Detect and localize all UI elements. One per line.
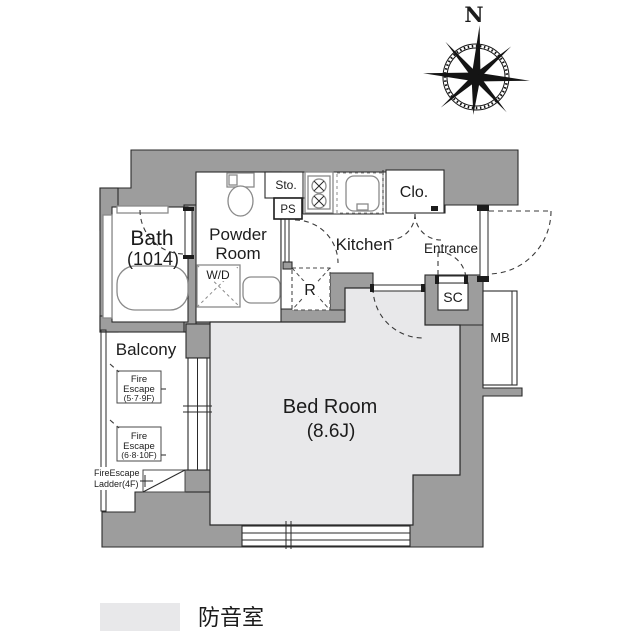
- hatch1-tick: [110, 364, 119, 372]
- compass-rose-icon: N: [420, 2, 533, 119]
- window-bath-top: [117, 206, 168, 213]
- room-label-bath-size: (1014): [127, 249, 179, 269]
- room-label-bedroom: Bed Room: [283, 396, 378, 418]
- closet-jamb: [431, 206, 438, 211]
- ladder-label-line2: Ladder(4F): [94, 479, 139, 489]
- room-label-entrance: Entrance: [424, 241, 478, 256]
- legend-swatch: [100, 603, 180, 631]
- label-meter-box: MB: [490, 330, 510, 345]
- room-label-powder-1: Powder: [209, 225, 267, 244]
- entrance-door: [477, 205, 551, 282]
- ladder-label-line1: FireEscape: [94, 468, 140, 478]
- fire-escape-1-line3: (5·7·9F): [124, 393, 155, 403]
- room-label-balcony: Balcony: [116, 340, 177, 359]
- hatch2-tick: [110, 420, 119, 428]
- north-label: N: [464, 2, 483, 27]
- room-label-bedroom-size: (8.6J): [307, 421, 356, 442]
- floor-plan: N 防音室 Bath (1014) Powder Room W/D Sto. P…: [0, 0, 640, 640]
- wash-basin: [243, 277, 280, 303]
- floor-plan-page: N 防音室 Bath (1014) Powder Room W/D Sto. P…: [0, 0, 640, 640]
- bathtub: [117, 266, 188, 310]
- toilet: [227, 173, 254, 216]
- label-storage: Sto.: [275, 178, 296, 192]
- wall-above-window-stub: [186, 324, 213, 358]
- window-balcony-bedroom: [183, 358, 212, 470]
- label-shoe-closet: SC: [443, 289, 462, 305]
- label-washer-dryer: W/D: [206, 268, 230, 282]
- wall-under-window-stub: [185, 470, 213, 492]
- stove: [305, 172, 333, 213]
- fire-escape-2-line3: (6·8·10F): [121, 450, 157, 460]
- room-label-kitchen: Kitchen: [336, 235, 393, 254]
- room-label-powder-2: Room: [215, 244, 260, 263]
- window-bath-left: [103, 215, 112, 318]
- kitchen-sink: [346, 176, 379, 211]
- label-closet: Clo.: [400, 184, 428, 201]
- legend-label: 防音室: [198, 606, 264, 631]
- label-pipe-shaft: PS: [280, 204, 296, 216]
- label-refrigerator: R: [304, 282, 316, 299]
- room-label-bath: Bath: [130, 227, 173, 250]
